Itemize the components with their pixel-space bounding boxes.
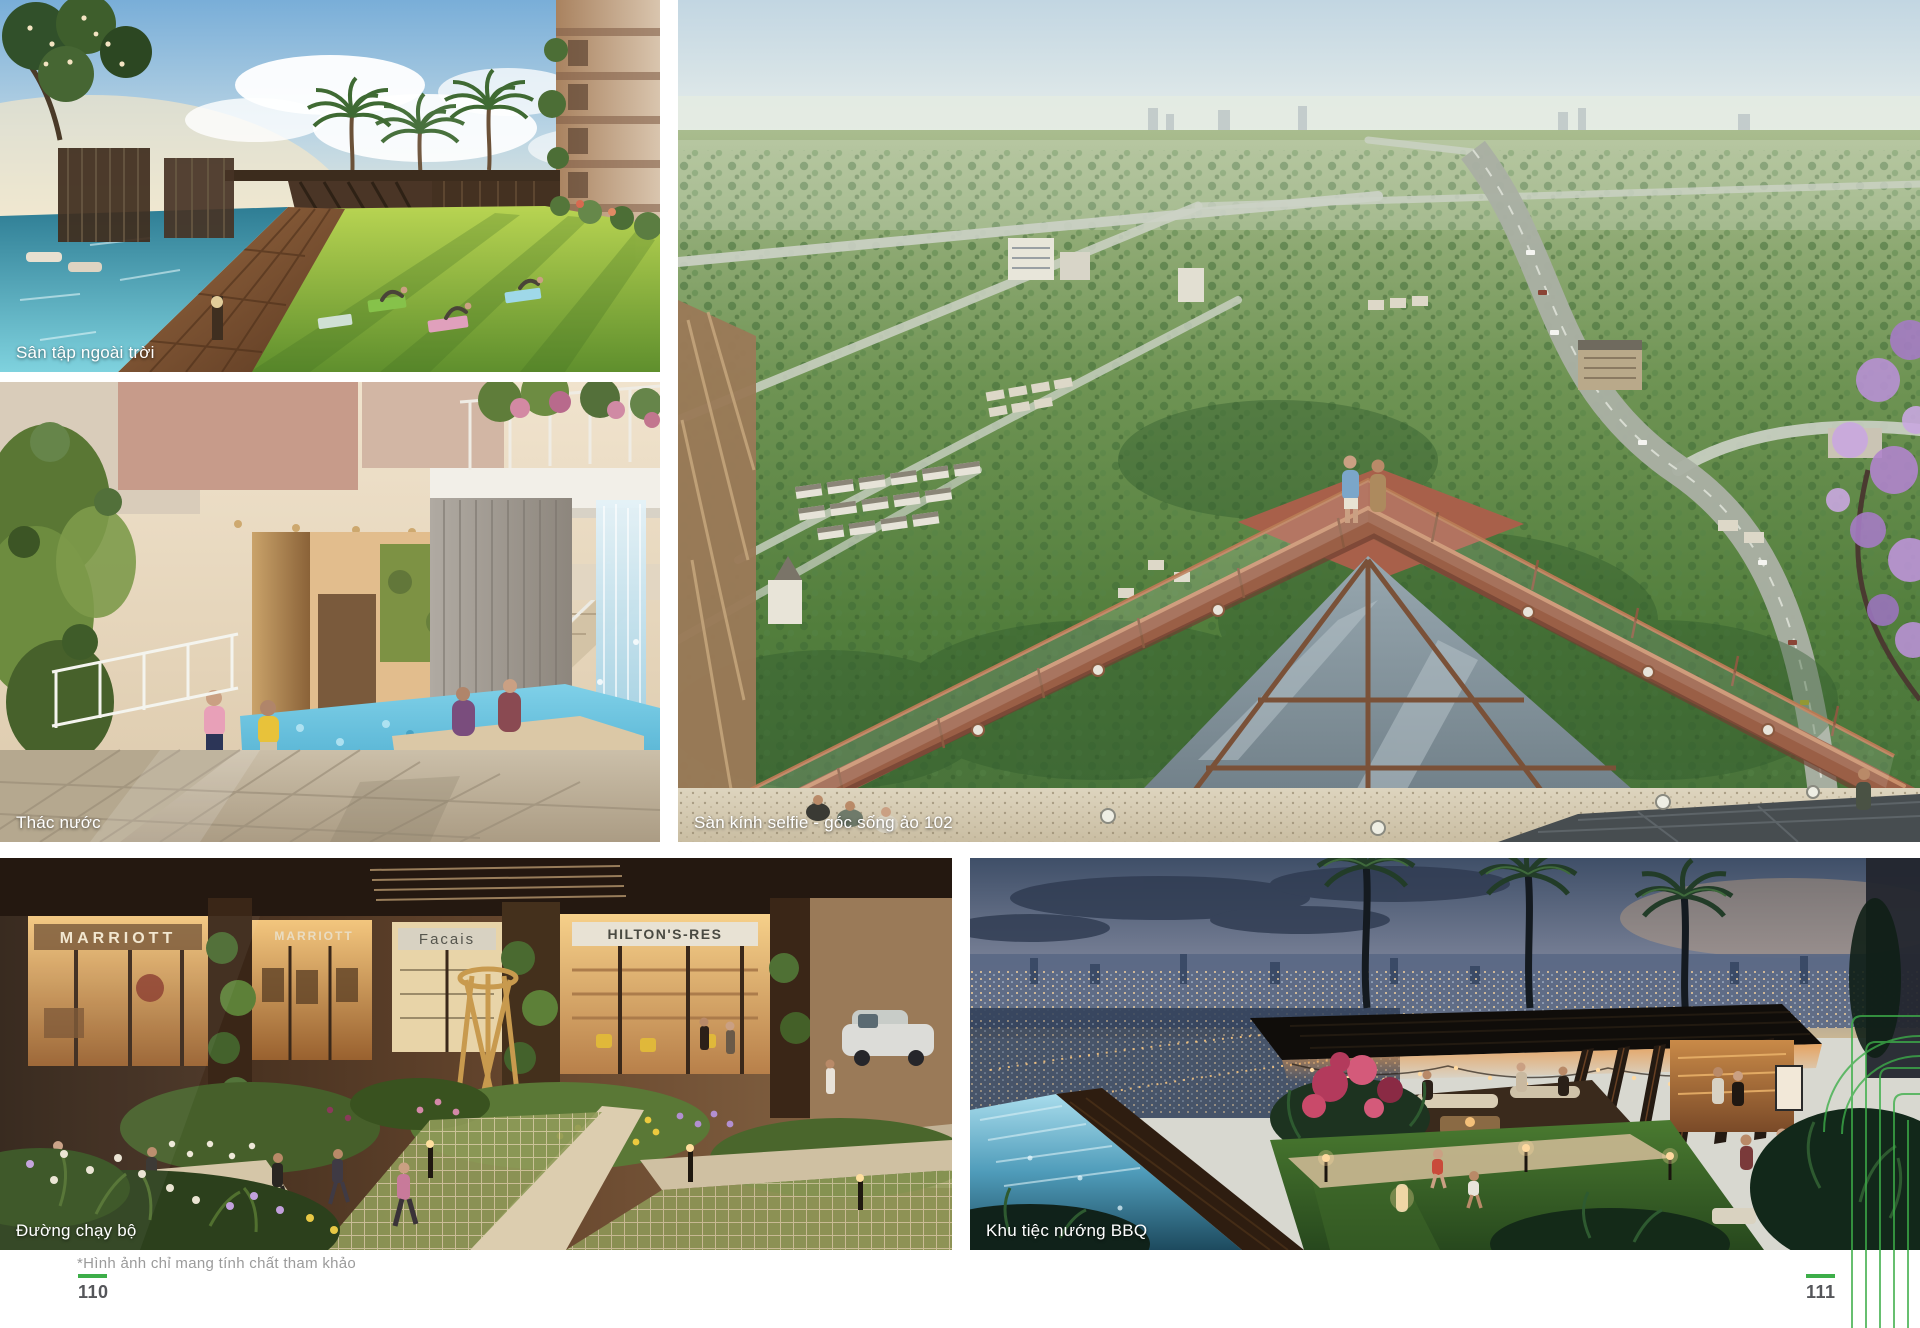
page-number-accent-bar: [78, 1274, 107, 1278]
bbq-render: [970, 858, 1920, 1250]
page-number-right: 111: [1806, 1274, 1846, 1303]
sign-marriott-2: MARRIOTT: [274, 929, 353, 943]
outdoor-gym-render: [0, 0, 660, 372]
disclaimer-note: *Hình ảnh chỉ mang tính chất tham khảo: [77, 1255, 356, 1272]
photo-outdoor-gym: Sân tập ngoài trời: [0, 0, 660, 372]
menu-board: [1776, 1066, 1802, 1110]
photo-bbq-terrace: Khu tiệc nướng BBQ: [970, 858, 1920, 1250]
jogging-path-render: MARRIOTT MARRIOTT Facais: [0, 858, 952, 1250]
caption-bbq: Khu tiệc nướng BBQ: [986, 1222, 1147, 1239]
photographer-figure: [1856, 768, 1871, 810]
page-number-left: 110: [78, 1274, 118, 1303]
caption-outdoor-gym: Sân tập ngoài trời: [16, 344, 155, 361]
photo-waterfall: Thác nước: [0, 382, 660, 842]
tower-edge: [678, 300, 756, 842]
caption-jogging-path: Đường chạy bộ: [16, 1222, 137, 1239]
sign-facais: Facais: [419, 931, 475, 948]
garden-lamp: [211, 296, 223, 340]
atmosphere: [678, 140, 1920, 230]
storefront-hiltons: HILTON'S-RES: [560, 914, 770, 1074]
photo-jogging-path: MARRIOTT MARRIOTT Facais: [0, 858, 952, 1250]
green-wall-texture: [388, 570, 412, 594]
sign-hiltons: HILTON'S-RES: [608, 926, 723, 942]
photo-selfie-deck: Sàn kính selfie - góc sống ảo 102: [678, 0, 1920, 842]
caption-waterfall: Thác nước: [16, 814, 101, 831]
selfie-deck-render: [678, 0, 1920, 842]
pink-wall-block: [118, 382, 358, 490]
caption-selfie-deck: Sàn kính selfie - góc sống ảo 102: [694, 814, 953, 831]
storefront-marriott-2: MARRIOTT: [252, 920, 372, 1060]
waterfall-render: [0, 382, 660, 842]
bbq-bar: [1670, 1040, 1802, 1132]
page-number-accent-bar-right: [1806, 1274, 1835, 1278]
brochure-page: Sân tập ngoài trời: [0, 0, 1920, 1328]
